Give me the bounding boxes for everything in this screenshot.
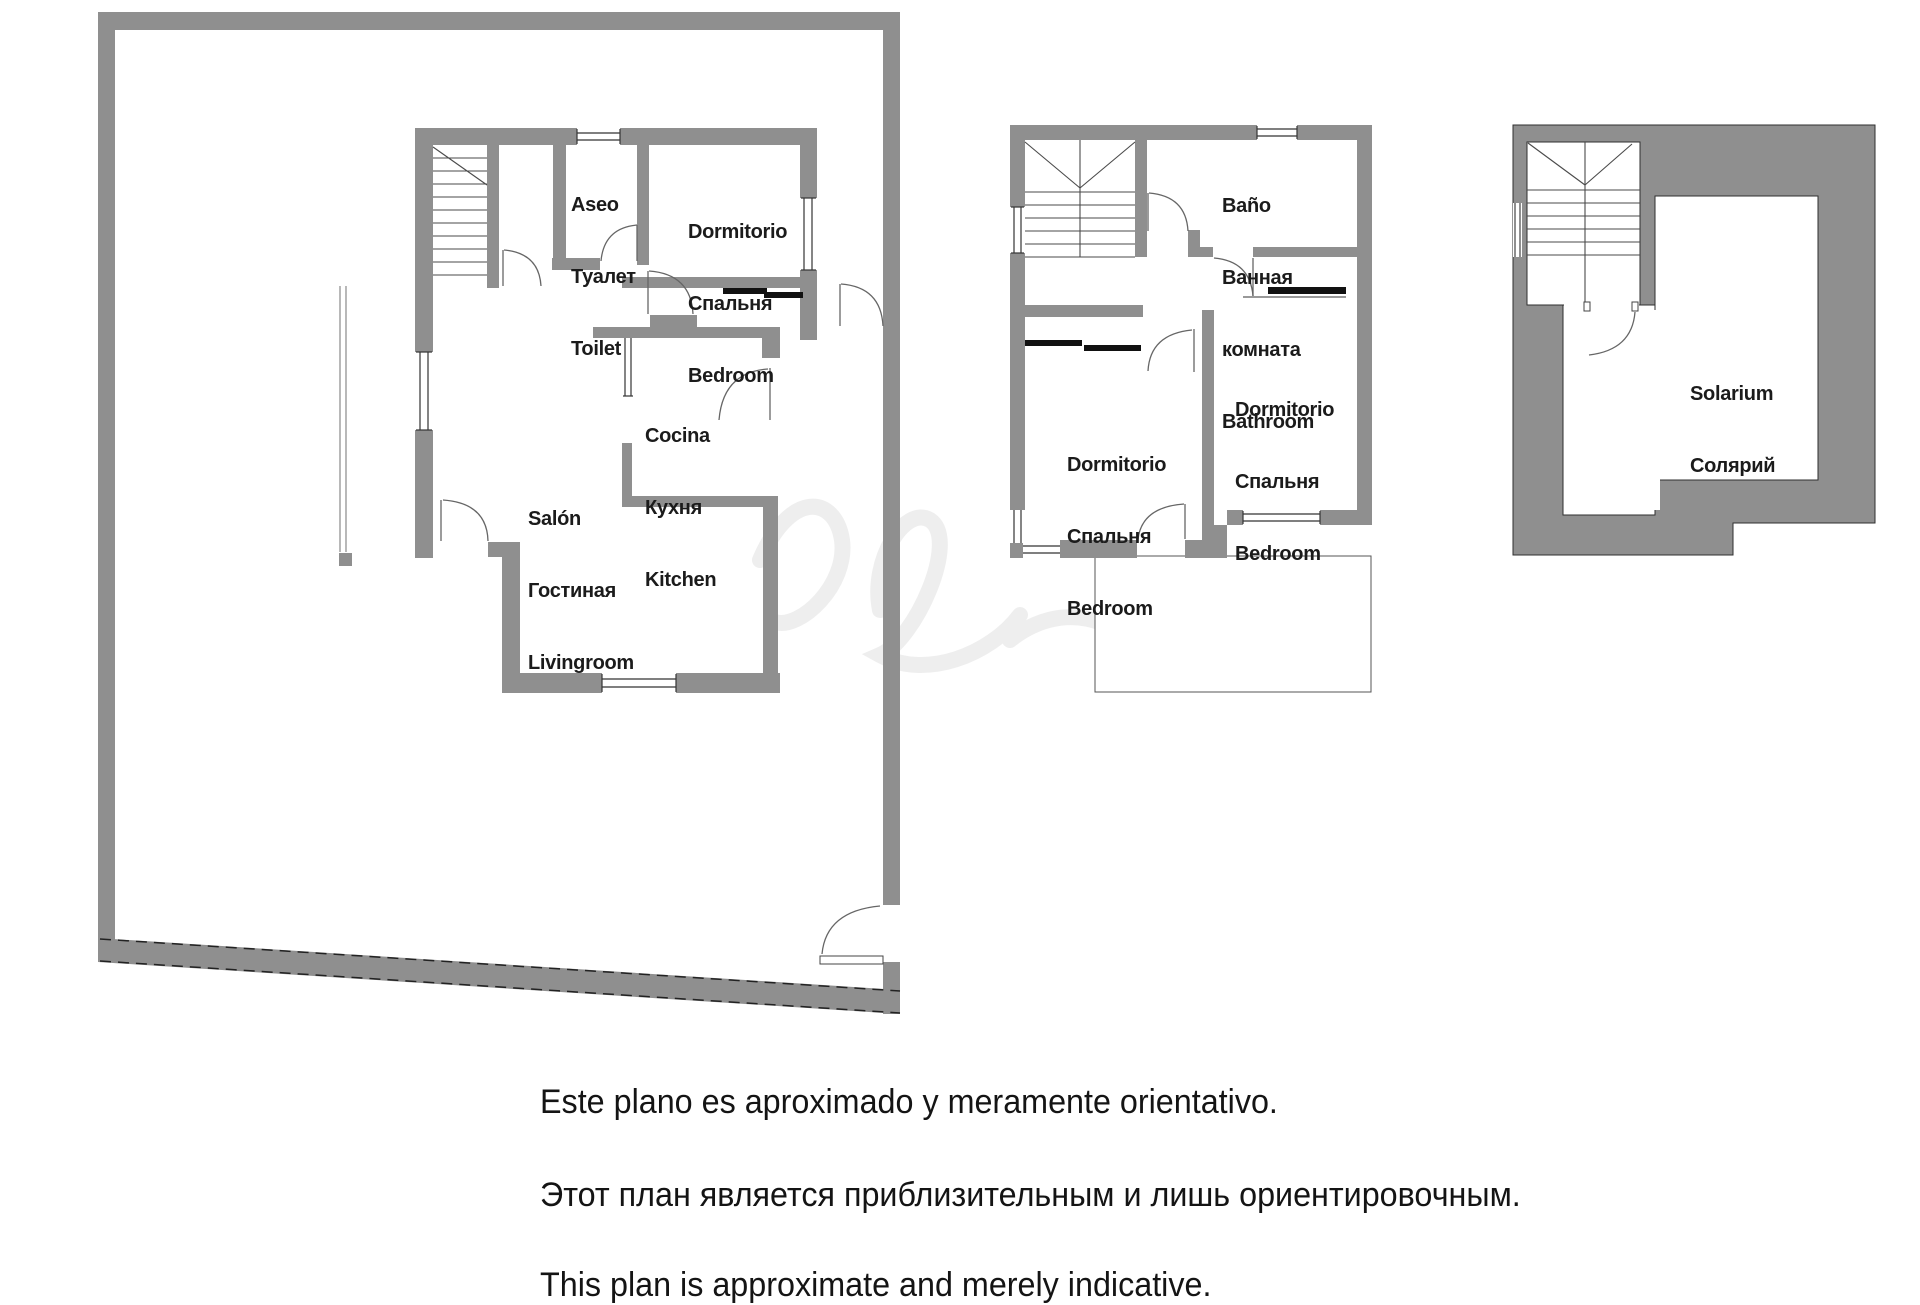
room-label-line: Dormitorio (1235, 398, 1334, 422)
room-label-kitchen: Cocina Кухня Kitchen (645, 376, 716, 640)
room-label-line: Кухня (645, 496, 716, 520)
room-label-livingroom: Salón Гостиная Livingroom (528, 459, 634, 723)
room-label-line: Salón (528, 507, 634, 531)
floorplan-page: Aseo Туалет Toilet Dormitorio Спальня Be… (0, 0, 1920, 1280)
window (1513, 203, 1522, 257)
room-label-solarium: Solarium Солярий (1690, 334, 1775, 526)
room-label-line: Bedroom (1235, 542, 1334, 566)
room-label-line: Bedroom (1067, 597, 1166, 621)
footer-note-ru: Этот план является приблизительным и лиш… (540, 1176, 1521, 1215)
room-label-line: Baño (1222, 194, 1314, 218)
room-label-line: Cocina (645, 424, 716, 448)
room-label-line: Солярий (1690, 454, 1775, 478)
room-label-line: Aseo (571, 193, 636, 217)
room-label-line: Toilet (571, 337, 636, 361)
ground-floor-plan (98, 12, 900, 1014)
room-label-line: Dormitorio (688, 220, 787, 244)
room-label-bedroom-left: Dormitorio Спальня Bedroom (1067, 405, 1166, 669)
room-label-line: Livingroom (528, 651, 634, 675)
footer-note-es: Este plano es aproximado y meramente ori… (540, 1083, 1278, 1122)
room-label-line: Спальня (688, 292, 787, 316)
room-label-line: Туалет (571, 265, 636, 289)
garden-fence (339, 286, 352, 566)
room-label-line: Dormitorio (1067, 453, 1166, 477)
room-label-line: Спальня (1067, 525, 1166, 549)
room-label-line: Гостиная (528, 579, 634, 603)
staircase (1025, 140, 1135, 257)
room-label-line: Спальня (1235, 470, 1334, 494)
room-label-line: Solarium (1690, 382, 1775, 406)
staircase (433, 147, 487, 275)
room-label-line: Ванная (1222, 266, 1314, 290)
footer-note-en: This plan is approximate and merely indi… (540, 1266, 1211, 1305)
gate-door (820, 906, 883, 964)
room-label-bedroom-right: Dormitorio Спальня Bedroom (1235, 350, 1334, 614)
room-label-toilet: Aseo Туалет Toilet (571, 145, 636, 409)
room-label-line: Kitchen (645, 568, 716, 592)
